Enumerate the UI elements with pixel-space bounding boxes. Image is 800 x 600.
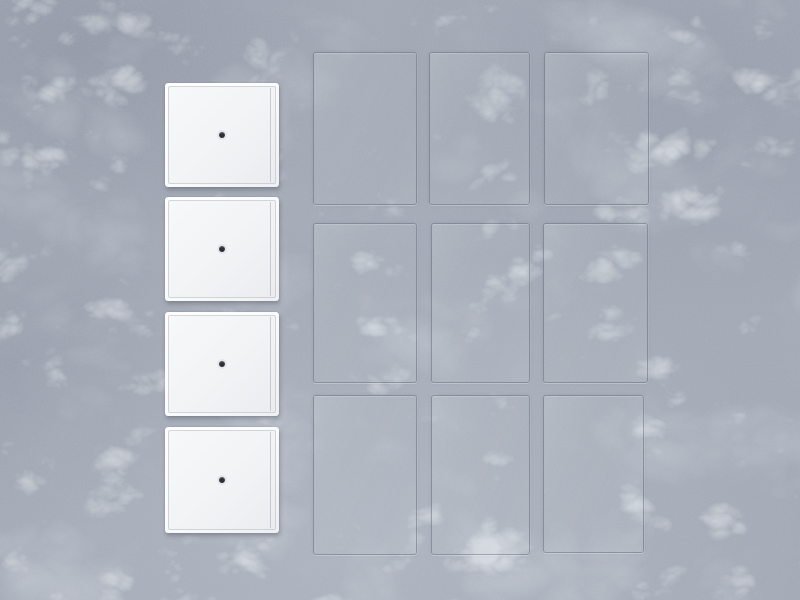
base-face bbox=[168, 200, 276, 298]
display-base bbox=[165, 83, 279, 187]
display-base bbox=[165, 427, 279, 533]
peg-hole bbox=[219, 132, 225, 138]
peg-hole bbox=[219, 361, 225, 367]
peg-hole bbox=[219, 477, 225, 483]
base-column bbox=[0, 0, 800, 600]
base-face bbox=[168, 86, 276, 184]
peg-hole bbox=[219, 246, 225, 252]
photo-stage bbox=[0, 0, 800, 600]
display-base bbox=[165, 197, 279, 301]
base-face bbox=[168, 315, 276, 413]
base-face bbox=[168, 430, 276, 530]
display-base bbox=[165, 312, 279, 416]
